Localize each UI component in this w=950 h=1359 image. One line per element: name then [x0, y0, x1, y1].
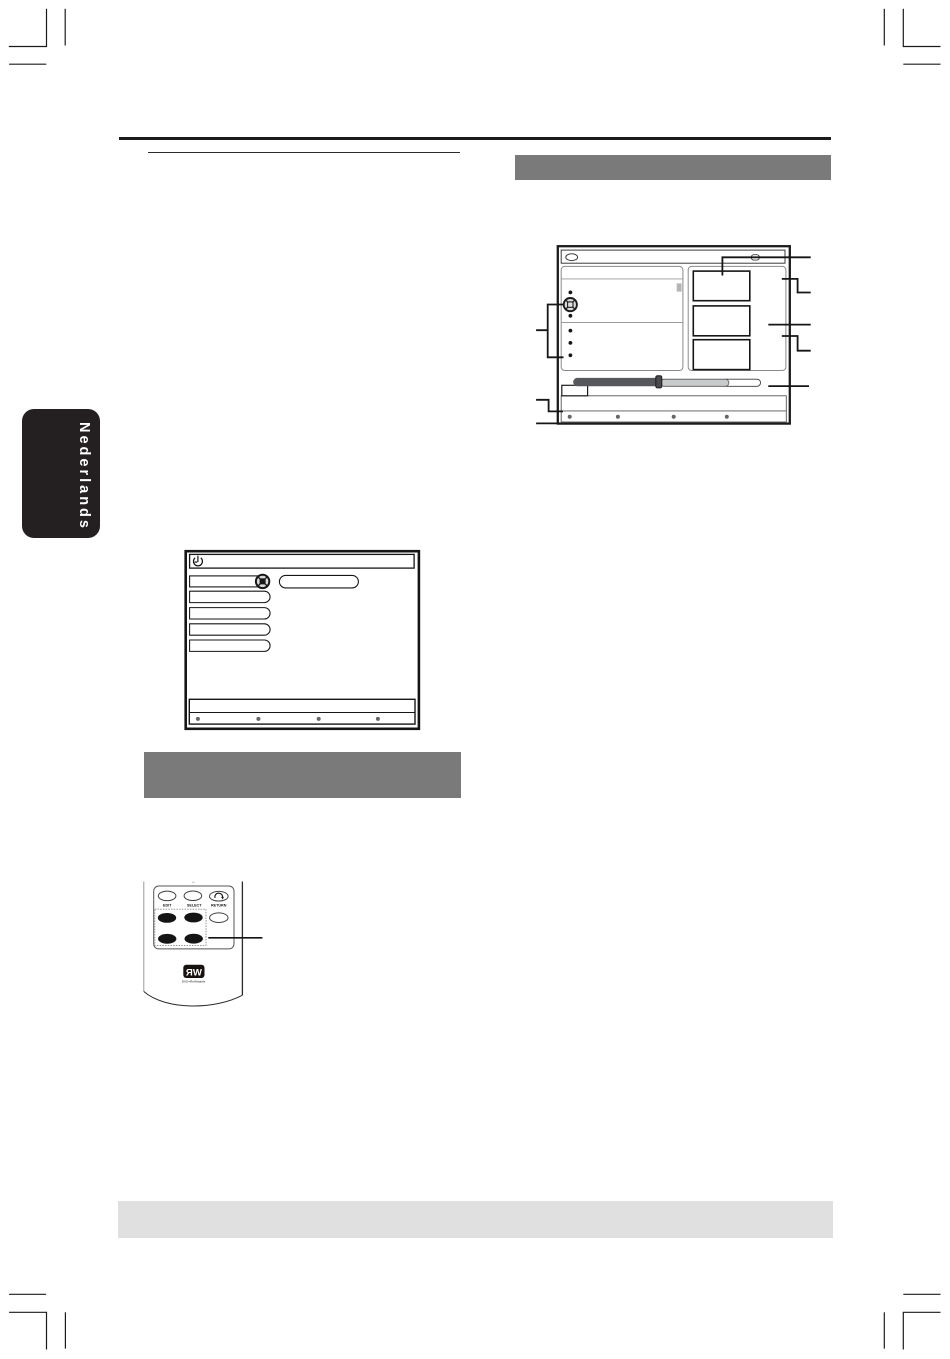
svg-text:DVD+ReWritable: DVD+ReWritable: [182, 980, 206, 984]
svg-text:ЯW: ЯW: [186, 967, 203, 978]
svg-text:RETURN: RETURN: [211, 903, 227, 907]
svg-text:SELECT: SELECT: [187, 903, 202, 907]
svg-text:EDIT: EDIT: [163, 903, 172, 907]
